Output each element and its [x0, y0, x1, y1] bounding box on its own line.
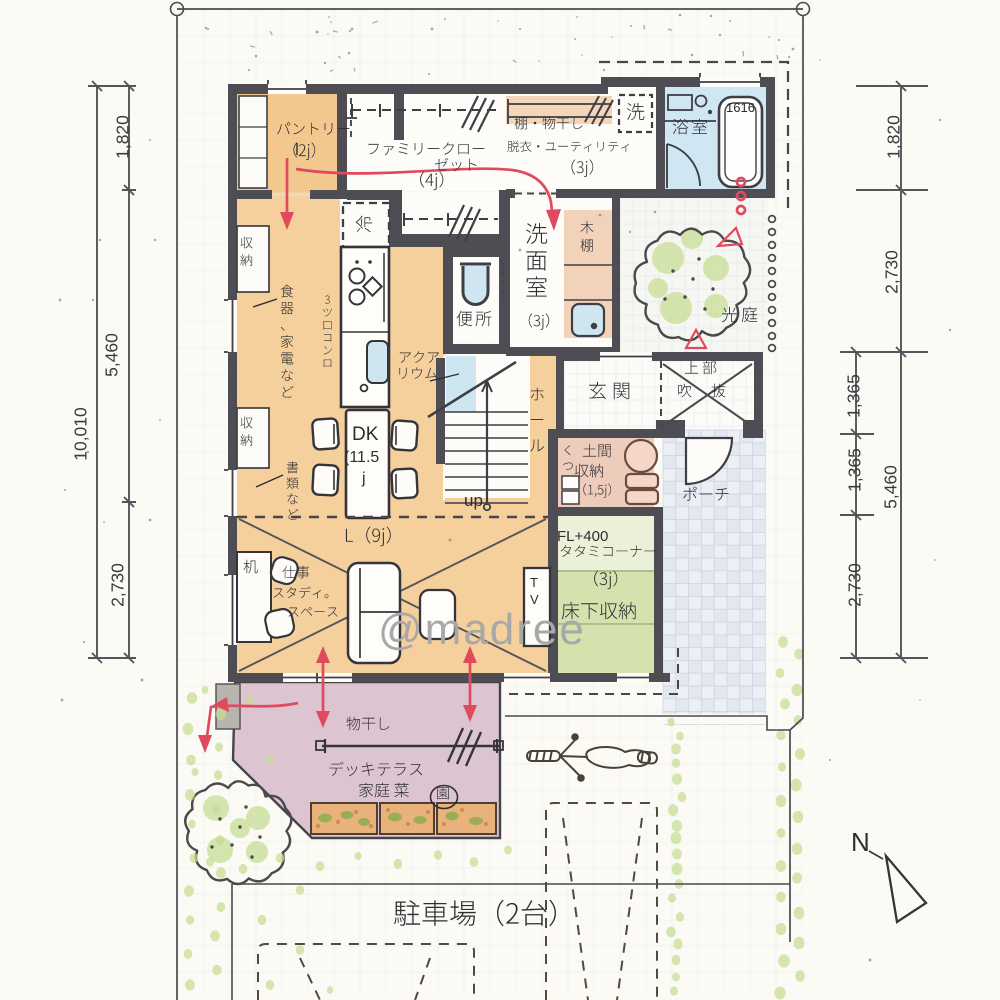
svg-text:1616: 1616	[726, 100, 755, 115]
svg-text:1,365: 1,365	[845, 448, 865, 492]
svg-text:1,820: 1,820	[884, 115, 904, 159]
svg-text:N: N	[851, 827, 870, 857]
svg-text:5,460: 5,460	[102, 333, 122, 377]
svg-text:1,365: 1,365	[844, 374, 864, 418]
svg-text:5,460: 5,460	[881, 465, 901, 509]
svg-text:@madree: @madree	[378, 605, 586, 654]
svg-text:T: T	[530, 575, 538, 590]
svg-text:(11.5: (11.5	[344, 449, 379, 466]
svg-text:up: up	[464, 491, 483, 510]
svg-text:DK: DK	[352, 424, 379, 445]
svg-text:1,820: 1,820	[113, 115, 133, 159]
svg-text:2,730: 2,730	[108, 563, 128, 607]
svg-text:FL+400: FL+400	[557, 528, 608, 545]
svg-text:2,730: 2,730	[882, 250, 902, 294]
svg-text:j: j	[361, 470, 366, 487]
svg-text:2,730: 2,730	[845, 563, 865, 607]
